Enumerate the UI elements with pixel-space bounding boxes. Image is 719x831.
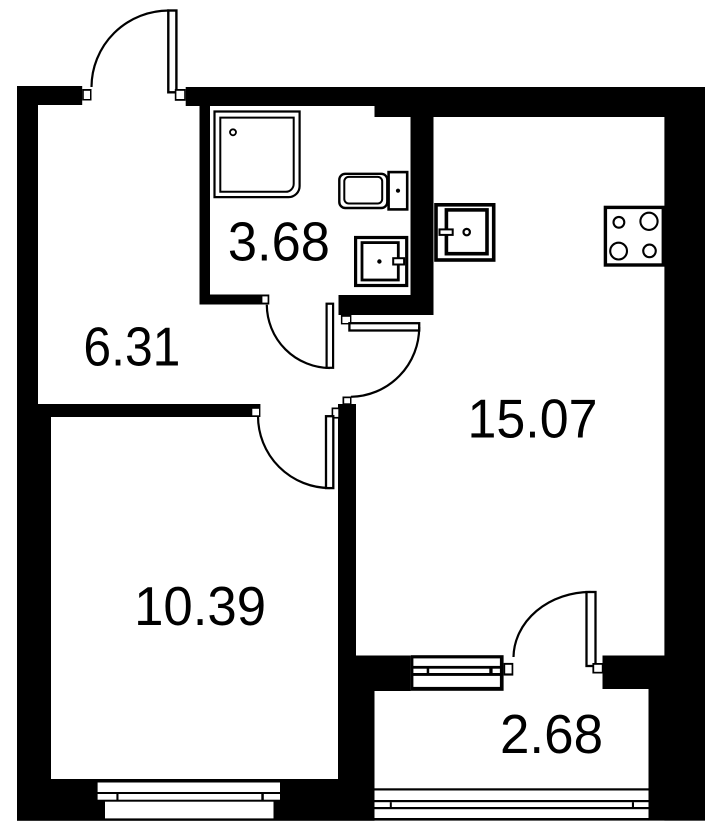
svg-text:15.07: 15.07 xyxy=(468,387,598,449)
svg-text:6.31: 6.31 xyxy=(83,316,180,378)
svg-text:2.68: 2.68 xyxy=(500,703,603,765)
svg-text:3.68: 3.68 xyxy=(228,211,330,273)
svg-text:10.39: 10.39 xyxy=(134,575,266,637)
